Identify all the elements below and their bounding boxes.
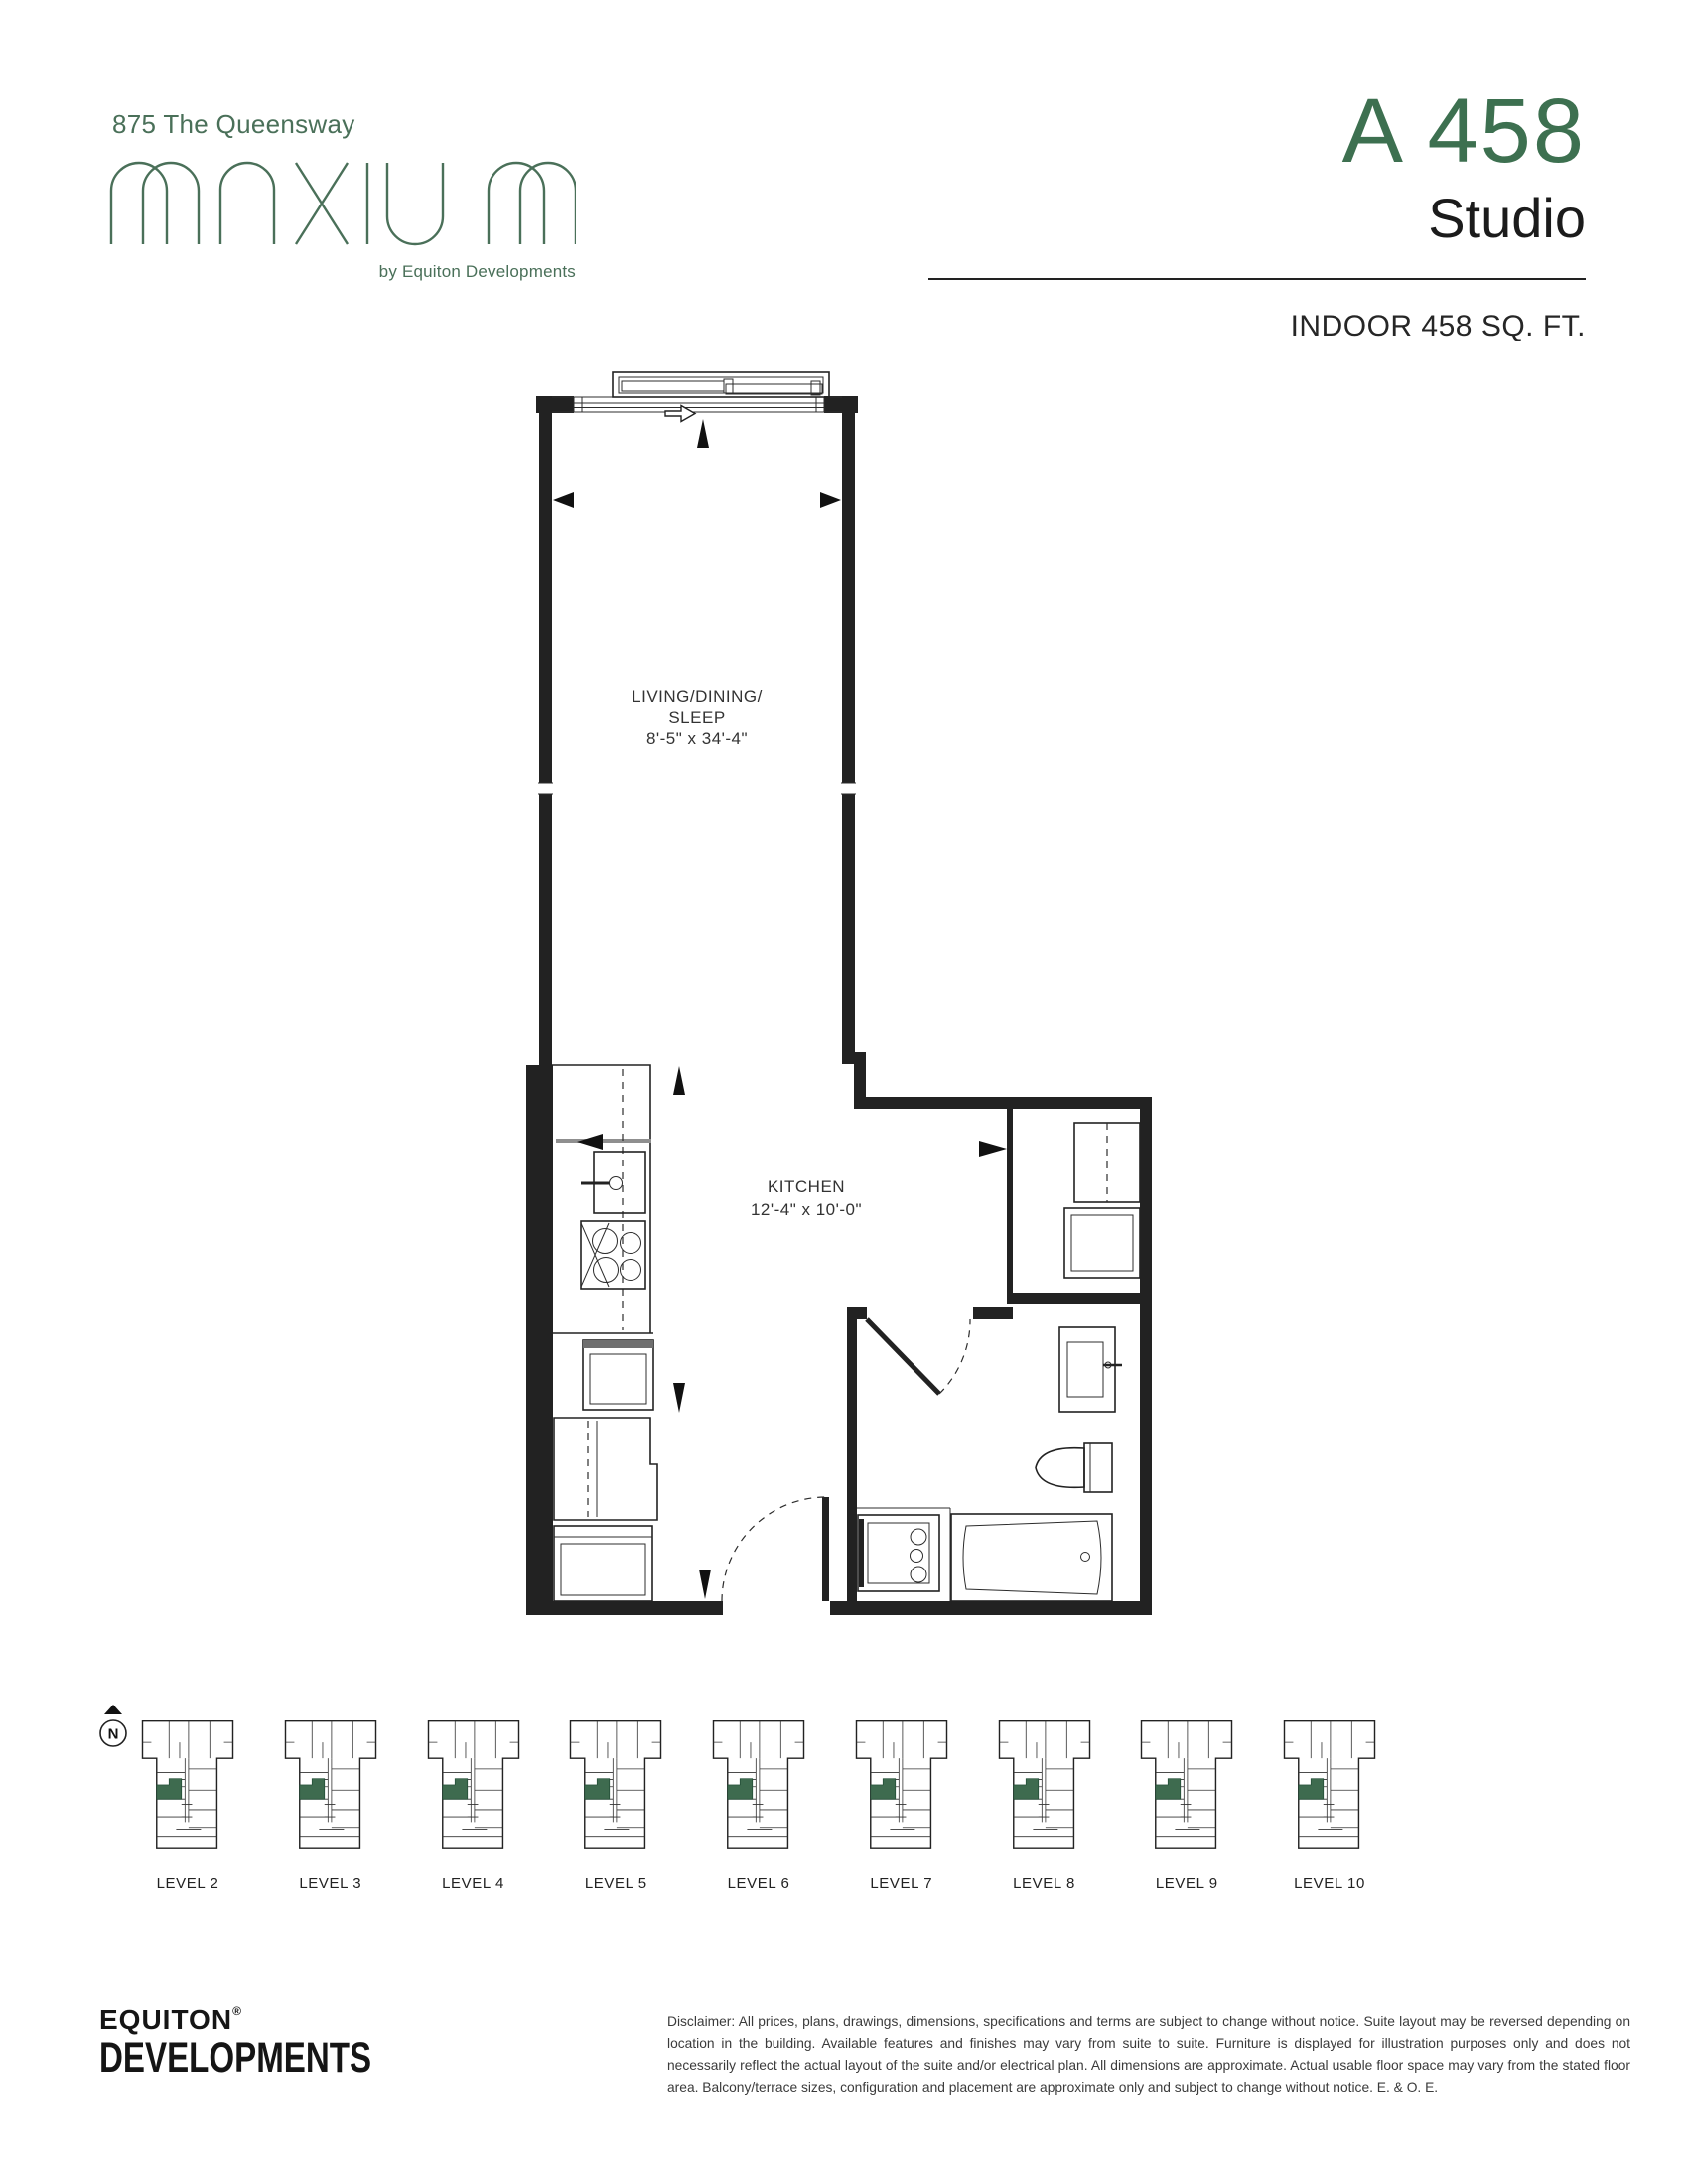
- level-label: LEVEL 8: [1013, 1875, 1075, 1892]
- level-label: LEVEL 7: [870, 1875, 932, 1892]
- kitchen-dims: 12'-4" x 10'-0": [751, 1200, 862, 1219]
- highlighted-suite: [300, 1779, 325, 1800]
- level-keyplans: LEVEL 2 LEVEL 3: [129, 1717, 1388, 1892]
- washer-dryer: [857, 1508, 950, 1601]
- highlighted-suite: [1013, 1779, 1038, 1800]
- highlighted-suite: [871, 1779, 896, 1800]
- base-cabinet: [554, 1526, 652, 1601]
- keyplan-drawing: [987, 1717, 1102, 1859]
- highlighted-suite: [157, 1779, 182, 1800]
- disclaimer-text: Disclaimer: All prices, plans, drawings,…: [667, 2011, 1630, 2099]
- oven: [552, 1333, 653, 1410]
- level-label: LEVEL 6: [728, 1875, 790, 1892]
- floor-plan-drawing: LIVING/DINING/ SLEEP 8'-5" x 34'-4" KITC…: [377, 263, 1172, 1643]
- balcony-sliding-door: [552, 372, 842, 422]
- section-arrows: [553, 419, 1007, 1599]
- logo-letter-m1b: [143, 163, 199, 244]
- equiton-developments-logo: EQUITON® DEVELOPMENTS: [99, 2005, 453, 2080]
- floor-plan: LIVING/DINING/ SLEEP 8'-5" x 34'-4" KITC…: [377, 263, 1172, 1643]
- toilet: [1036, 1443, 1112, 1492]
- developments-wordmark: DEVELOPMENTS: [99, 2037, 371, 2080]
- level-label: LEVEL 9: [1156, 1875, 1218, 1892]
- level-label: LEVEL 3: [299, 1875, 361, 1892]
- level-thumbnail: LEVEL 5: [557, 1717, 674, 1892]
- level-label: LEVEL 4: [442, 1875, 504, 1892]
- logo-letter-m2b: [520, 163, 576, 244]
- entry-door: [722, 1497, 829, 1601]
- level-label: LEVEL 5: [585, 1875, 647, 1892]
- level-thumbnail: LEVEL 6: [700, 1717, 817, 1892]
- keyplan-drawing: [273, 1717, 388, 1859]
- logo-letter-a: [220, 163, 274, 244]
- kitchen-label: KITCHEN: [768, 1177, 845, 1196]
- level-label: LEVEL 10: [1294, 1875, 1365, 1892]
- logo-letter-u: [387, 163, 443, 244]
- highlighted-suite: [585, 1779, 610, 1800]
- wall-joints: [538, 783, 856, 794]
- unit-type: Studio: [1342, 191, 1586, 246]
- level-thumbnail: LEVEL 9: [1128, 1717, 1245, 1892]
- level-thumbnail: LEVEL 3: [272, 1717, 389, 1892]
- living-room-label-2: SLEEP: [668, 708, 725, 727]
- entry-closet: [1064, 1123, 1140, 1278]
- highlighted-suite: [442, 1779, 467, 1800]
- north-compass-icon: N: [93, 1702, 133, 1757]
- bathroom-door: [867, 1319, 970, 1394]
- kitchen-counter: [552, 1065, 651, 1333]
- cooktop: [581, 1221, 645, 1289]
- level-thumbnail: LEVEL 7: [843, 1717, 960, 1892]
- wall-hatch-right: [824, 396, 858, 413]
- wall-hatch-left: [536, 396, 574, 413]
- equiton-wordmark: EQUITON: [99, 2004, 232, 2035]
- logo-letter-m1: [111, 163, 167, 244]
- bathtub: [951, 1514, 1112, 1601]
- highlighted-suite: [1299, 1779, 1324, 1800]
- highlighted-suite: [728, 1779, 753, 1800]
- unit-area: INDOOR 458 SQ. FT.: [1291, 310, 1586, 343]
- level-thumbnail: LEVEL 4: [415, 1717, 532, 1892]
- living-room-label: LIVING/DINING/: [632, 687, 763, 706]
- keyplan-drawing: [558, 1717, 673, 1859]
- compass-n-label: N: [108, 1726, 119, 1743]
- kitchen-sink: [581, 1152, 645, 1213]
- registered-mark: ®: [232, 2004, 241, 2018]
- keyplan-drawing: [844, 1717, 959, 1859]
- logo-letter-x: [296, 163, 348, 244]
- level-thumbnail: LEVEL 2: [129, 1717, 246, 1892]
- fridge: [554, 1418, 657, 1520]
- unit-code: A 458: [1342, 85, 1586, 177]
- project-address: 875 The Queensway: [112, 109, 355, 140]
- keyplan-drawing: [701, 1717, 816, 1859]
- bathroom-vanity: [1059, 1327, 1122, 1412]
- living-room-dims: 8'-5" x 34'-4": [646, 729, 748, 748]
- keyplan-drawing: [1272, 1717, 1387, 1859]
- keyplan-drawing: [1129, 1717, 1244, 1859]
- walls: [526, 396, 1152, 1615]
- maxium-logo: [109, 153, 576, 246]
- level-label: LEVEL 2: [157, 1875, 219, 1892]
- logo-letter-m2: [489, 163, 544, 244]
- level-thumbnail: LEVEL 8: [986, 1717, 1103, 1892]
- level-thumbnail: LEVEL 10: [1271, 1717, 1388, 1892]
- keyplan-drawing: [416, 1717, 531, 1859]
- keyplan-drawing: [130, 1717, 245, 1859]
- highlighted-suite: [1156, 1779, 1181, 1800]
